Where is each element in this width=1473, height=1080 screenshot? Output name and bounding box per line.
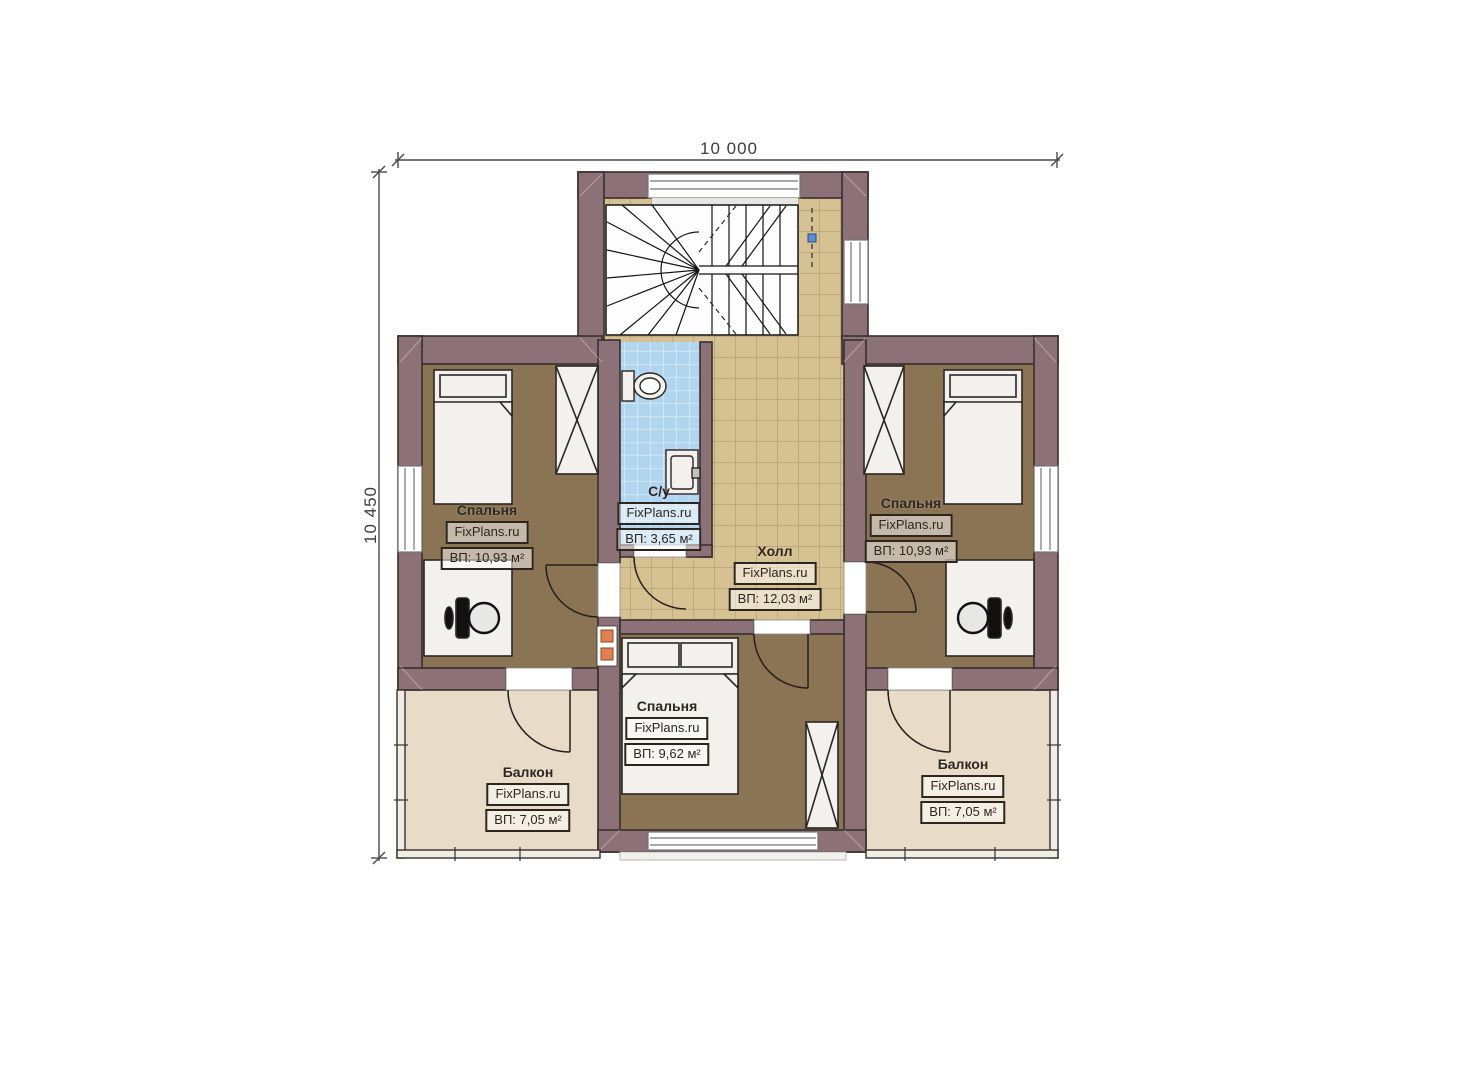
room-label-hall: Холл FixPlans.ru ВП: 12,03 м² [729,543,822,611]
balcony-left-door-threshold [506,668,572,690]
room-title: С/у [648,483,670,499]
hall-divider-wall-b [810,620,844,634]
bedroom-right-door-threshold [844,562,866,614]
room-watermark: FixPlans.ru [617,502,700,525]
room-area: ВП: 7,05 м² [920,801,1005,824]
room-label-balcony-right: Балкон FixPlans.ru ВП: 7,05 м² [920,756,1005,824]
dimension-width-label: 10 000 [700,139,758,159]
room-area: ВП: 3,65 м² [616,528,701,551]
bedroom-left-door-threshold [598,563,620,617]
room-area: ВП: 9,62 м² [624,743,709,766]
stair-left-wall [578,172,604,340]
wardrobe-left-icon [556,366,598,474]
column-right-wall-b [844,614,866,852]
desk-left-icon [424,560,512,656]
floor-plan-page: { "plan": { "dimensions": { "width_label… [0,0,1473,1080]
room-title: Холл [757,543,792,559]
stair-right-window-icon [844,240,868,304]
bottom-wall-window-icon [620,832,846,860]
room-title: Балкон [938,756,989,772]
toilet-icon [622,371,666,401]
right-wall-window-icon [1034,466,1058,552]
room-area: ВП: 7,05 м² [485,809,570,832]
chair-left-icon [469,603,499,633]
balcony-right-rail-bottom [866,850,1058,858]
room-watermark: FixPlans.ru [733,562,816,585]
wing-top-wall-right [842,336,1058,364]
room-label-bedroom-left: Спальня FixPlans.ru ВП: 10,93 м² [441,502,534,570]
vent-shaft-icon [597,626,617,666]
bathroom-right-wall [700,342,712,557]
room-watermark: FixPlans.ru [486,783,569,806]
room-area: ВП: 10,93 м² [441,547,534,570]
stair-top-window-icon [648,174,800,206]
column-right-wall-a [844,340,866,562]
desk-right-icon [946,560,1034,656]
balcony-right-door-threshold [888,668,952,690]
balcony-left-rail-bottom [397,850,600,858]
room-area: ВП: 10,93 м² [865,540,958,563]
wardrobe-bottom-icon [806,722,838,828]
room-label-bedroom-bottom: Спальня FixPlans.ru ВП: 9,62 м² [624,698,709,766]
left-wall-window-icon [398,466,422,552]
hall-divider-wall-a [620,620,754,634]
floor-plan-drawing [0,0,1473,1080]
dimension-height-label: 10 450 [361,486,381,544]
room-label-balcony-left: Балкон FixPlans.ru ВП: 7,05 м² [485,764,570,832]
stair-reference-marker [808,234,816,242]
wing-bottom-wall-left-b [572,668,598,690]
balcony-right-rail-side [1050,690,1058,858]
bed-right-icon [944,370,1022,504]
room-label-bedroom-right: Спальня FixPlans.ru ВП: 10,93 м² [865,495,958,563]
room-watermark: FixPlans.ru [921,775,1004,798]
room-title: Спальня [637,698,697,714]
room-watermark: FixPlans.ru [625,717,708,740]
bed-left-icon [434,370,512,504]
bedroom-bottom-door-threshold [754,620,810,634]
wardrobe-right-icon [864,366,904,474]
wing-bottom-wall-right-b [952,668,1058,690]
wing-bottom-wall-right-a [866,668,888,690]
balcony-left-rail-side [397,690,405,858]
room-label-bathroom: С/у FixPlans.ru ВП: 3,65 м² [616,483,701,551]
room-title: Балкон [503,764,554,780]
chair-right-icon [958,603,988,633]
room-watermark: FixPlans.ru [869,514,952,537]
stairs-icon [606,205,816,335]
room-title: Спальня [457,502,517,518]
room-title: Спальня [881,495,941,511]
room-watermark: FixPlans.ru [445,521,528,544]
wing-bottom-wall-left-a [398,668,506,690]
room-area: ВП: 12,03 м² [729,588,822,611]
wing-top-wall-left [398,336,602,364]
